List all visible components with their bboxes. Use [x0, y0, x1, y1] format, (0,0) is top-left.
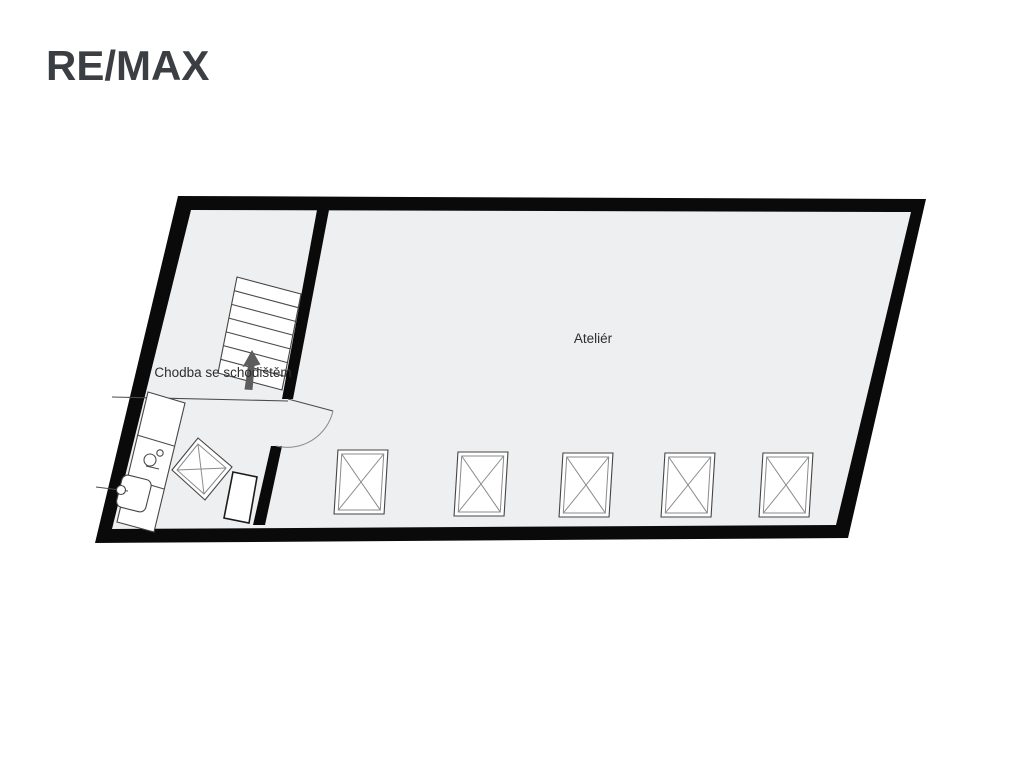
- skylight-atelier-1: [334, 450, 388, 514]
- skylight-atelier-2: [454, 452, 508, 516]
- skylight-atelier-5: [759, 453, 813, 517]
- floor-plan-page: RE/MAX: [0, 0, 1024, 772]
- sink-faucet-knob: [117, 486, 126, 495]
- floor-plan: Chodba se schodištěm Ateliér: [0, 0, 1024, 772]
- room-label-hallway: Chodba se schodištěm: [154, 365, 291, 380]
- skylight-atelier-3: [559, 453, 613, 517]
- skylight-atelier-4: [661, 453, 715, 517]
- room-label-atelier: Ateliér: [574, 331, 613, 346]
